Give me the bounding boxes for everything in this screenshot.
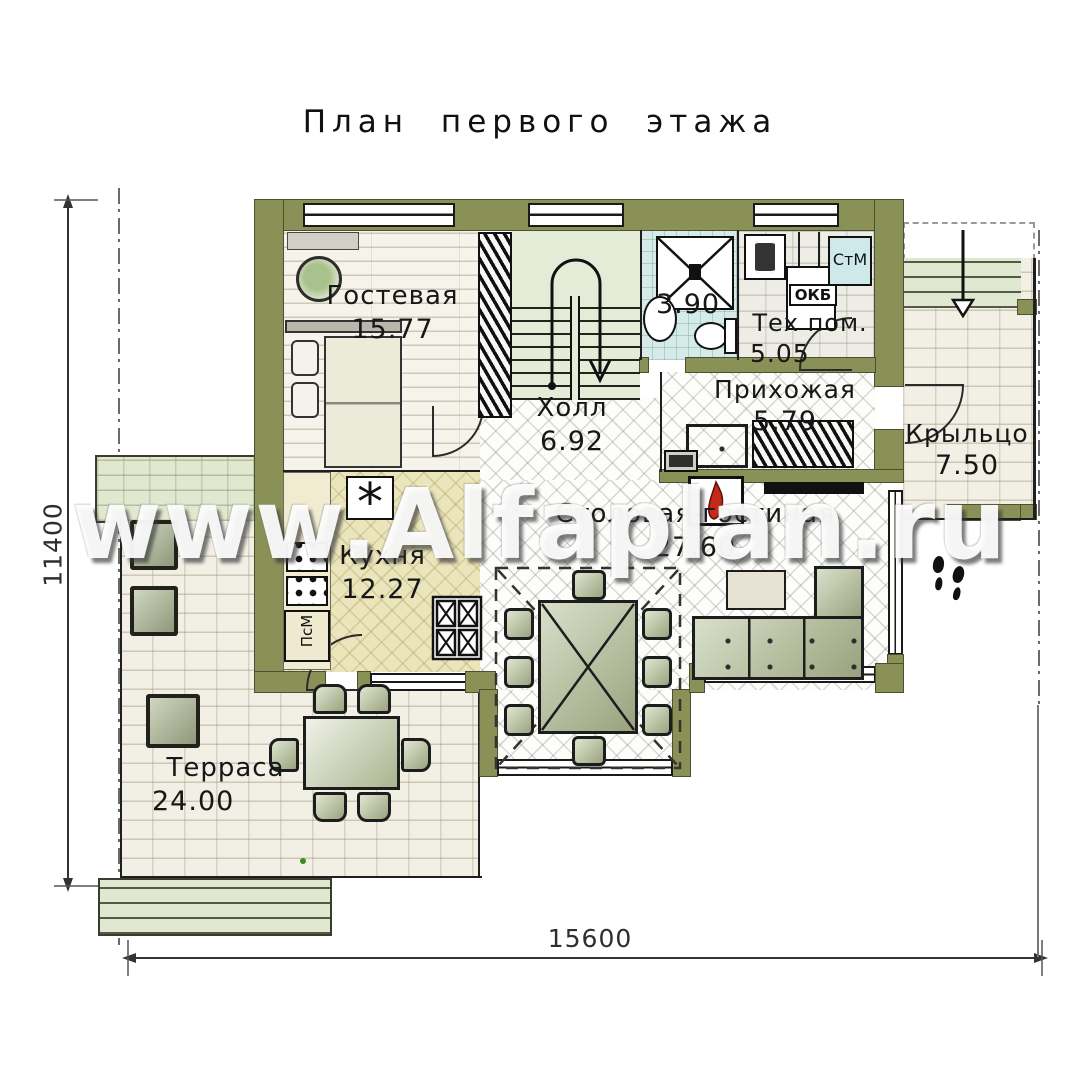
bathroom-label: 3.90: [638, 288, 738, 322]
terrace-plants-icon: [300, 858, 306, 864]
guest-north-window: [303, 203, 455, 227]
dimension-width-label: 15600: [520, 924, 660, 953]
terrace-edge-bottom: [120, 876, 482, 878]
room-name: Терраса: [138, 752, 313, 785]
dining-chair: [642, 656, 672, 688]
boiler-pipe: [798, 232, 800, 268]
dining-chair: [504, 704, 534, 736]
page-title: План первого этажа: [0, 104, 1080, 140]
tech-north-window: [753, 203, 839, 227]
guest-door-arc: [433, 406, 483, 456]
bed-pillow: [291, 382, 319, 418]
terrace-chair: [357, 792, 391, 822]
dining-table-cross: [538, 600, 638, 734]
room-name: Тех пом.: [742, 308, 878, 338]
porch-entry-arrow-icon: [950, 228, 976, 320]
sofa-main: [692, 616, 864, 680]
dimension-witness-right: [1037, 705, 1039, 957]
hall-label: Холл 6.92: [492, 392, 652, 458]
boiler-pipe: [818, 232, 820, 268]
watermark: www.Alfaplan.ru: [45, 468, 1035, 581]
entry-hall-label: Прихожая 5.79: [695, 374, 875, 439]
stairs-north-window: [528, 203, 624, 227]
floor-plan-canvas: План первого этажа: [0, 0, 1080, 1080]
bed-mattress: [324, 336, 402, 468]
lounge-chair: [146, 694, 200, 748]
partition-entry-west: [660, 372, 662, 472]
room-area: 24.00: [138, 785, 313, 819]
stair-direction-arrow: [524, 244, 628, 396]
dining-chair: [504, 656, 534, 688]
room-name: Холл: [492, 392, 652, 425]
guest-shelf: [287, 232, 359, 250]
dining-chair: [642, 704, 672, 736]
boiler-label: ОКБ: [789, 284, 837, 306]
room-area: 3.90: [638, 288, 738, 322]
room-name: Прихожая: [695, 374, 875, 405]
wall-west: [255, 200, 283, 692]
tech-room-label: Тех пом. 5.05: [742, 308, 878, 369]
terrace-entry-steps: [98, 878, 332, 936]
living-south-post-east: [876, 664, 903, 692]
wall-east-upper: [875, 200, 903, 386]
terrace-table: [303, 716, 400, 790]
dishwasher-label: ПсМ: [298, 608, 316, 654]
toilet-tank: [724, 318, 737, 354]
dining-chair: [504, 608, 534, 640]
terrace-chair: [357, 684, 391, 714]
wall-bath-south: [640, 358, 648, 372]
toilet-bowl: [694, 322, 728, 350]
terrace-chair: [401, 738, 431, 772]
room-name: Крыльцо: [903, 418, 1031, 449]
room-area: 15.77: [300, 313, 485, 347]
room-area: 5.05: [742, 338, 878, 369]
room-area: 5.79: [695, 405, 875, 439]
dining-chair: [572, 736, 606, 766]
guest-room-label: Гостевая 15.77: [300, 280, 485, 346]
terrace-chair: [313, 792, 347, 822]
terrace-chair: [313, 684, 347, 714]
terrace-label: Терраса 24.00: [138, 752, 313, 818]
room-area: 6.92: [492, 425, 652, 459]
lounge-chair: [130, 586, 178, 636]
wall-south-kitchen-c: [466, 672, 495, 692]
dining-chair: [642, 608, 672, 640]
room-name: Гостевая: [300, 280, 485, 313]
water-heater-core: [755, 241, 775, 273]
washing-machine-label: СтМ: [828, 250, 872, 269]
axis-line-right: [1038, 230, 1040, 705]
